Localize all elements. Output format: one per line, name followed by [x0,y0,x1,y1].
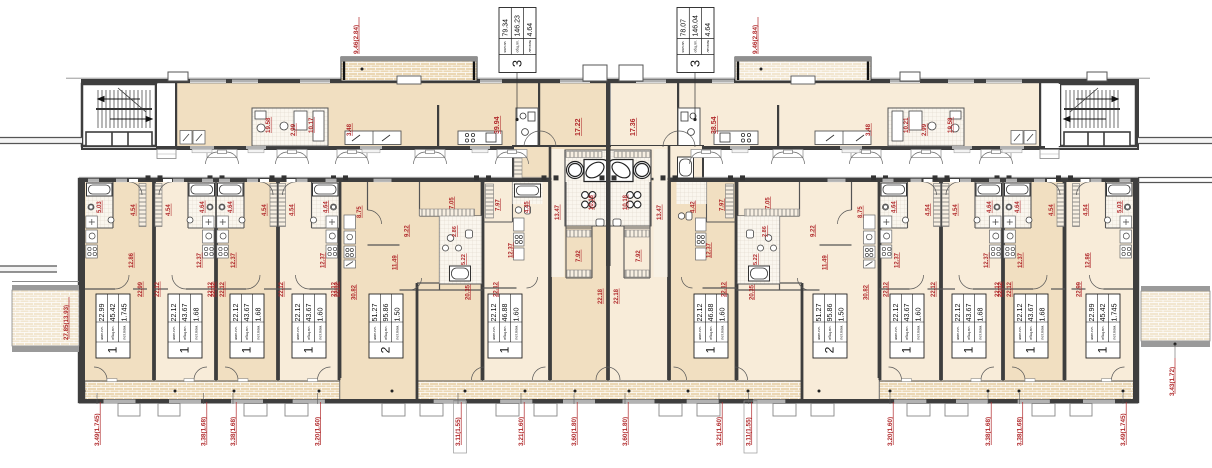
svg-text:43.67: 43.67 [902,304,911,322]
svg-text:общ.пл.: общ.пл. [306,325,311,340]
svg-text:лет.пом.: лет.пом. [1112,325,1117,340]
svg-text:146.23: 146.23 [515,15,522,37]
svg-text:22.12: 22.12 [953,304,962,322]
svg-text:1.60: 1.60 [511,308,520,322]
svg-text:1.68: 1.68 [191,308,200,322]
svg-text:1: 1 [498,346,512,353]
svg-text:общ.пл.: общ.пл. [182,325,187,340]
svg-text:2.99: 2.99 [921,123,928,136]
svg-text:79.34: 79.34 [502,19,509,37]
svg-text:1.68: 1.68 [253,308,262,322]
svg-text:39.94: 39.94 [494,116,501,134]
svg-text:1: 1 [1096,346,1110,353]
svg-text:жил.пл.: жил.пл. [681,41,685,53]
svg-text:22.12: 22.12 [1015,304,1024,322]
svg-text:43.67: 43.67 [1026,304,1035,322]
svg-text:1: 1 [178,346,192,353]
svg-text:общ.пл.: общ.пл. [827,325,832,340]
svg-text:лет.пом.: лет.пом. [318,325,323,340]
svg-text:22.12: 22.12 [293,304,302,322]
svg-text:146.04: 146.04 [693,15,700,37]
svg-text:1.50: 1.50 [392,308,401,322]
svg-text:общ.пл.: общ.пл. [966,325,971,340]
svg-text:17.22: 17.22 [575,118,582,136]
svg-text:2: 2 [379,346,393,353]
svg-text:3.48: 3.48 [865,123,872,136]
svg-text:19.58: 19.58 [265,117,272,133]
svg-text:22.12: 22.12 [695,304,704,322]
svg-text:общ.пл.: общ.пл. [904,325,909,340]
svg-text:жил.пл.: жил.пл. [1089,326,1094,340]
svg-text:лет.пом.: лет.пом. [978,325,983,340]
svg-text:51.27: 51.27 [814,304,823,322]
svg-text:22.12: 22.12 [231,304,240,322]
svg-text:51.27: 51.27 [370,304,379,322]
svg-text:общ.пл.: общ.пл. [1028,325,1033,340]
svg-text:лет.пом.: лет.пом. [1040,325,1045,340]
svg-text:1.68: 1.68 [1037,308,1046,322]
svg-text:жил.пл.: жил.пл. [99,326,104,340]
svg-text:жил.пл.: жил.пл. [171,326,176,340]
svg-text:1: 1 [962,346,976,353]
svg-text:45.42: 45.42 [108,304,117,322]
svg-text:43.67: 43.67 [242,304,251,322]
svg-text:1.60: 1.60 [717,308,726,322]
svg-text:22.99: 22.99 [1087,304,1096,322]
svg-text:10.17: 10.17 [308,117,315,133]
svg-text:45.42: 45.42 [1098,304,1107,322]
svg-text:общ.пл.: общ.пл. [244,325,249,340]
svg-text:общ.пл.: общ.пл. [708,325,713,340]
svg-text:19.58: 19.58 [947,117,954,133]
svg-text:22.12: 22.12 [169,304,178,322]
svg-text:46.88: 46.88 [500,304,509,322]
svg-text:жил.пл.: жил.пл. [1017,326,1022,340]
svg-text:лет.пом.: лет.пом. [720,325,725,340]
svg-text:жил.пл.: жил.пл. [295,326,300,340]
svg-text:43.67: 43.67 [304,304,313,322]
svg-text:лет.пом.: лет.пом. [256,325,261,340]
svg-text:1: 1 [1024,346,1038,353]
svg-text:95.86: 95.86 [381,304,390,322]
svg-text:17.36: 17.36 [630,118,637,136]
svg-text:3: 3 [509,60,524,67]
svg-text:43.67: 43.67 [180,304,189,322]
svg-text:78.07: 78.07 [680,19,687,37]
svg-text:1.745: 1.745 [1109,304,1118,322]
svg-text:лет.пом.: лет.пом. [194,325,199,340]
svg-text:жил.пл.: жил.пл. [697,326,702,340]
svg-text:1: 1 [302,346,316,353]
svg-text:общ.пл.: общ.пл. [694,40,698,52]
svg-text:1.60: 1.60 [913,308,922,322]
svg-text:жил.пл.: жил.пл. [955,326,960,340]
svg-text:1: 1 [240,346,254,353]
svg-text:3: 3 [687,60,702,67]
svg-text:жил.пл.: жил.пл. [893,326,898,340]
svg-text:лет.пом.: лет.пом. [122,325,127,340]
svg-text:жил.пл.: жил.пл. [372,326,377,340]
svg-text:лет.пом.: лет.пом. [706,40,710,53]
svg-text:1.745: 1.745 [119,304,128,322]
svg-text:общ.пл.: общ.пл. [516,40,520,52]
svg-text:46.88: 46.88 [706,304,715,322]
svg-text:лет.пом.: лет.пом. [916,325,921,340]
svg-text:общ.пл.: общ.пл. [383,325,388,340]
svg-text:10.21: 10.21 [903,117,910,133]
svg-text:лет.пом.: лет.пом. [514,325,519,340]
svg-text:95.86: 95.86 [825,304,834,322]
svg-text:1.60: 1.60 [315,308,324,322]
svg-text:общ.пл.: общ.пл. [110,325,115,340]
svg-text:жил.пл.: жил.пл. [816,326,821,340]
svg-text:жил.пл.: жил.пл. [491,326,496,340]
svg-text:1.68: 1.68 [975,308,984,322]
svg-text:лет.пом.: лет.пом. [839,325,844,340]
svg-text:43.67: 43.67 [964,304,973,322]
svg-text:22.99: 22.99 [97,304,106,322]
svg-text:2: 2 [823,346,837,353]
svg-text:4.64: 4.64 [527,23,534,37]
svg-text:общ.пл.: общ.пл. [1100,325,1105,340]
svg-text:1: 1 [900,346,914,353]
svg-text:22.12: 22.12 [489,304,498,322]
svg-text:жил.пл.: жил.пл. [233,326,238,340]
svg-text:22.12: 22.12 [891,304,900,322]
svg-text:38.54: 38.54 [711,116,718,134]
svg-text:1: 1 [106,346,120,353]
svg-text:жил.пл.: жил.пл. [503,41,507,53]
svg-text:1: 1 [704,346,718,353]
svg-text:2.99: 2.99 [290,123,297,136]
svg-text:4.64: 4.64 [705,23,712,37]
svg-text:общ.пл.: общ.пл. [502,325,507,340]
svg-text:1.50: 1.50 [836,308,845,322]
svg-text:лет.пом.: лет.пом. [395,325,400,340]
svg-text:3.48: 3.48 [346,123,353,136]
svg-text:лет.пом.: лет.пом. [528,40,532,53]
